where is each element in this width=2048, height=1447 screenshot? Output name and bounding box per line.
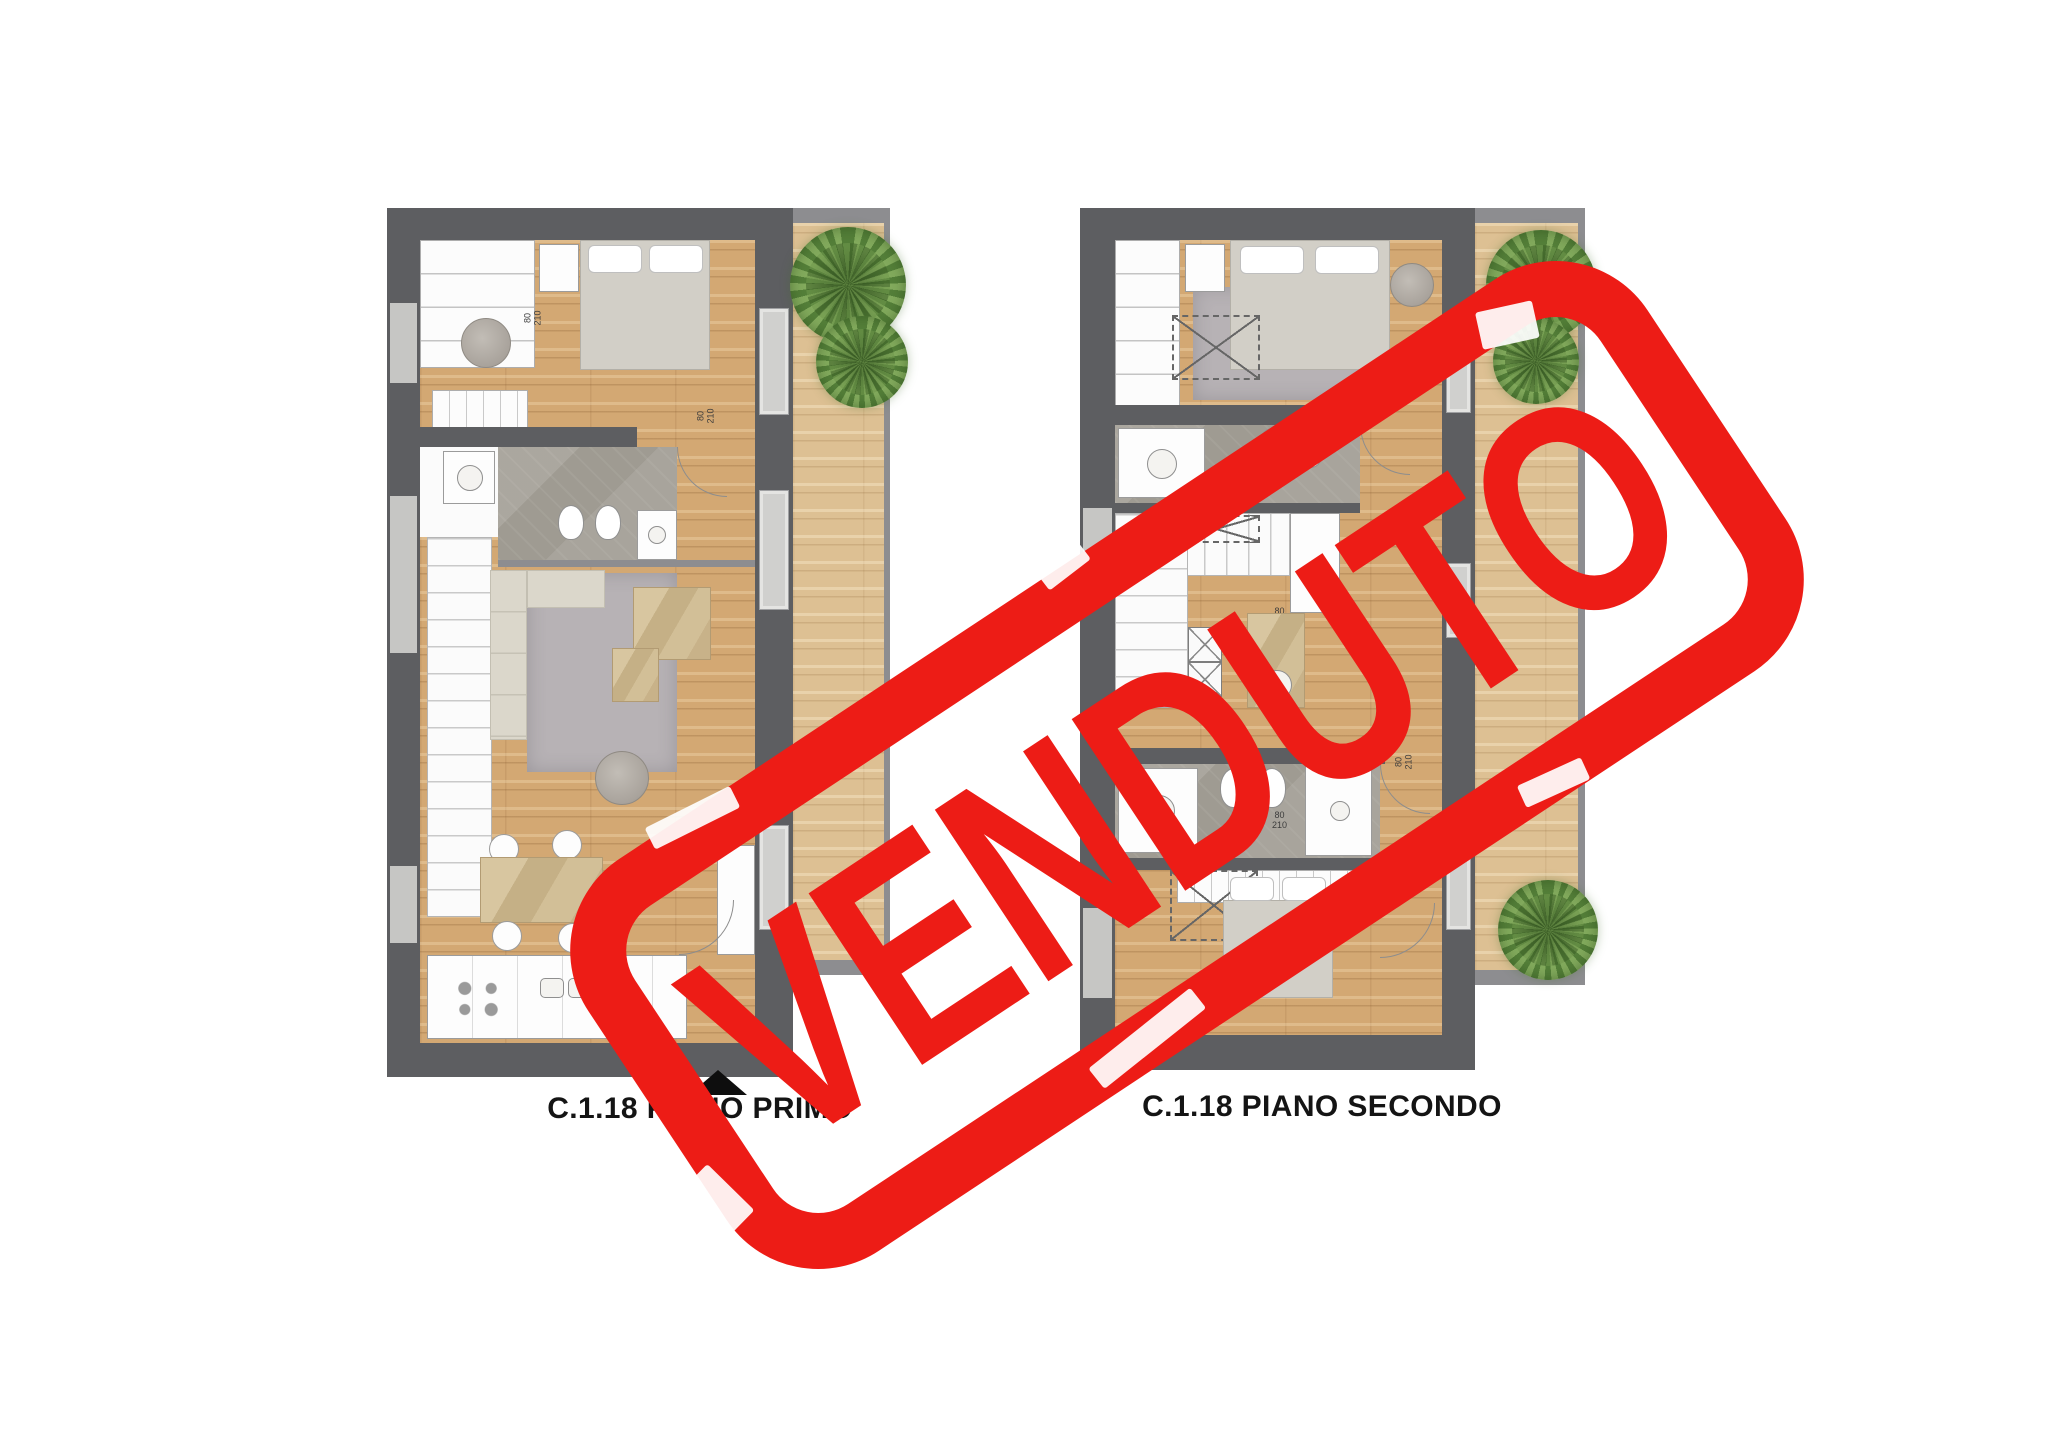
low-wardrobe xyxy=(432,390,528,428)
void-opening xyxy=(1172,315,1260,380)
dimension-label: 80210 xyxy=(523,310,543,325)
pouf xyxy=(595,751,649,805)
chair xyxy=(552,830,582,860)
pillow xyxy=(1315,246,1379,274)
nightstand xyxy=(539,244,579,292)
sink xyxy=(1147,449,1177,479)
dimension-label: 80210 xyxy=(696,408,716,423)
bidet xyxy=(595,505,621,540)
kitchen-sink xyxy=(540,978,564,998)
caption-piano-secondo: C.1.18 PIANO SECONDO xyxy=(1042,1090,1602,1124)
stamp-scuff xyxy=(682,1164,754,1236)
plant xyxy=(1498,880,1598,980)
wall xyxy=(420,427,637,447)
plant xyxy=(816,316,908,408)
stamp-scuff xyxy=(1038,543,1091,591)
side-table xyxy=(612,648,659,702)
sink xyxy=(457,465,483,491)
round-side-table xyxy=(1390,263,1434,307)
chair xyxy=(492,921,522,951)
sofa-chaise xyxy=(527,570,605,608)
balcony-wall xyxy=(793,208,890,223)
balcony-glass-door xyxy=(759,490,789,610)
nightstand xyxy=(1185,244,1225,292)
shower-drain xyxy=(648,526,666,544)
pouf xyxy=(461,318,511,368)
double-bed xyxy=(580,240,710,370)
balcony-wall xyxy=(1475,208,1585,223)
balcony-glass-door xyxy=(759,308,789,415)
window-recess xyxy=(390,303,417,383)
sofa xyxy=(490,570,527,740)
wall xyxy=(1080,208,1475,240)
pillow xyxy=(588,245,642,273)
cooktop xyxy=(448,974,508,1022)
window-recess xyxy=(390,866,417,943)
floorplan-sheet: 80210 80210 xyxy=(0,0,2048,1447)
shower xyxy=(637,510,677,560)
pillow xyxy=(1240,246,1304,274)
washbasin-vanity xyxy=(443,451,495,504)
pillow xyxy=(649,245,703,273)
wall xyxy=(498,560,755,567)
entry-door-recess xyxy=(390,496,417,653)
toilet xyxy=(558,505,584,540)
wall xyxy=(387,208,793,240)
